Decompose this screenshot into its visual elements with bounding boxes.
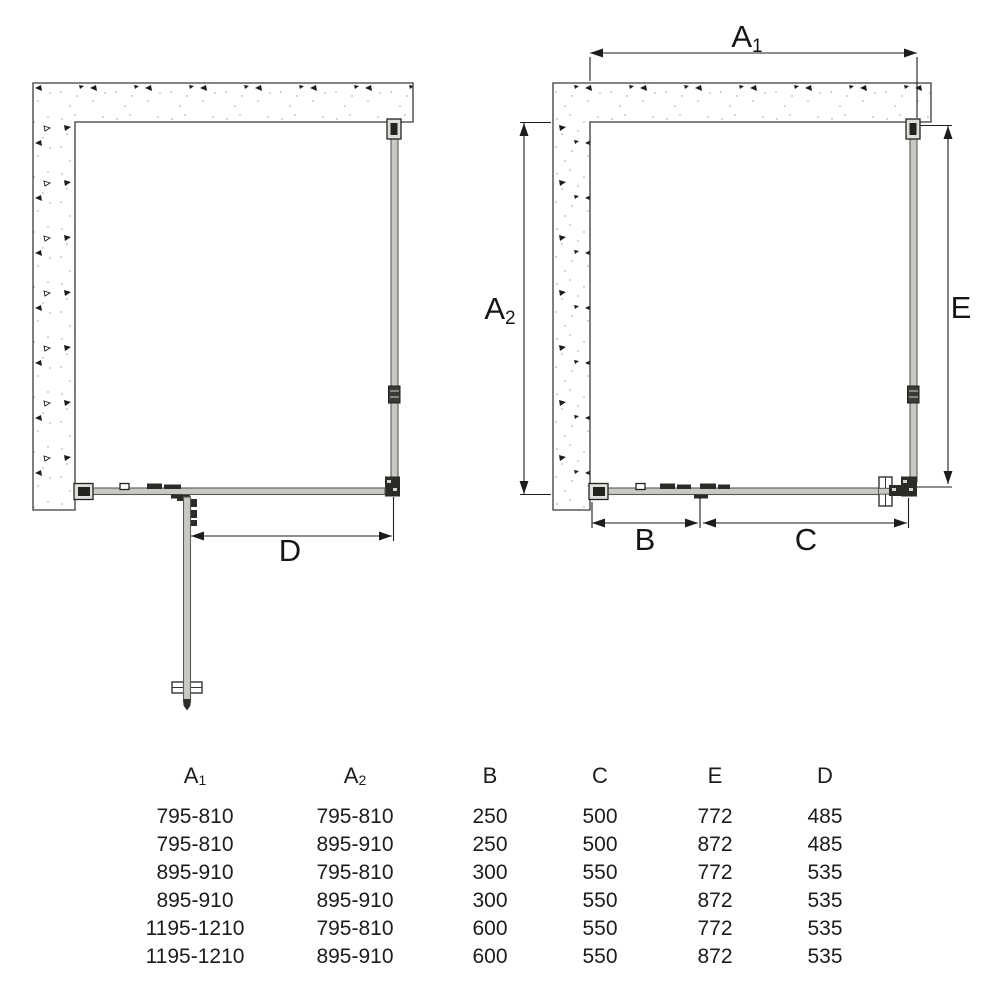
table-cell: 895-910 bbox=[115, 889, 275, 913]
table-cell: 772 bbox=[655, 917, 775, 941]
dim-label-c: C bbox=[795, 522, 817, 557]
table-cell: 795-810 bbox=[275, 805, 435, 829]
table-header-b: B bbox=[435, 763, 545, 789]
table-cell: 500 bbox=[545, 833, 655, 857]
table-cell: 872 bbox=[655, 889, 775, 913]
table-row: 895-910 895-910 300 550 872 535 bbox=[115, 887, 875, 915]
table-header-d: D bbox=[775, 763, 875, 789]
table-cell: 772 bbox=[655, 805, 775, 829]
corner-bracket bbox=[385, 477, 400, 497]
table-cell: 500 bbox=[545, 805, 655, 829]
table-cell: 300 bbox=[435, 861, 545, 885]
table-cell: 795-810 bbox=[115, 805, 275, 829]
shower-enclosure-technical-drawing: D bbox=[0, 0, 1000, 755]
dimension-d: D bbox=[191, 497, 394, 568]
dim-label-a1: A1 bbox=[731, 19, 762, 57]
table-cell: 795-810 bbox=[275, 861, 435, 885]
table-cell: 550 bbox=[545, 917, 655, 941]
table-cell: 550 bbox=[545, 889, 655, 913]
open-door-view: D bbox=[33, 83, 413, 711]
dimension-c: C bbox=[703, 498, 909, 557]
table-row: 795-810 795-810 250 500 772 485 bbox=[115, 803, 875, 831]
table-cell: 600 bbox=[435, 917, 545, 941]
table-cell: 300 bbox=[435, 889, 545, 913]
wall-profile-top bbox=[387, 119, 401, 139]
dimension-a2: A2 bbox=[484, 123, 551, 495]
side-glass-panel bbox=[910, 128, 917, 482]
dim-label-e: E bbox=[951, 290, 972, 325]
dim-label-d: D bbox=[279, 533, 301, 568]
bottom-glass-panel bbox=[92, 488, 385, 495]
dim-label-b: B bbox=[635, 522, 656, 557]
panel-connector bbox=[908, 386, 920, 403]
table-cell: 535 bbox=[775, 917, 875, 941]
table-row: 895-910 795-810 300 550 772 535 bbox=[115, 859, 875, 887]
wall-l-shape bbox=[33, 83, 413, 510]
table-cell: 250 bbox=[435, 833, 545, 857]
dimension-b: B bbox=[592, 497, 700, 557]
door-glass-open bbox=[184, 497, 191, 702]
table-cell: 535 bbox=[775, 861, 875, 885]
wall-profile-bottom bbox=[74, 484, 93, 500]
panel-connector bbox=[389, 386, 401, 403]
dimension-table: A1 A2 B C E D 795-810 795-810 250 500 77… bbox=[115, 762, 875, 971]
side-glass-panel bbox=[391, 128, 398, 482]
table-cell: 485 bbox=[775, 833, 875, 857]
table-cell: 872 bbox=[655, 833, 775, 857]
closed-view: A1 A2 E B bbox=[484, 19, 971, 557]
dim-label-a2: A2 bbox=[484, 291, 515, 329]
table-cell: 550 bbox=[545, 945, 655, 969]
corner-bracket bbox=[889, 477, 917, 497]
panel-bracket bbox=[636, 484, 645, 490]
table-cell: 895-910 bbox=[275, 945, 435, 969]
panel-bracket bbox=[120, 484, 129, 490]
table-cell: 1195-1210 bbox=[115, 945, 275, 969]
table-cell: 872 bbox=[655, 945, 775, 969]
table-cell: 550 bbox=[545, 861, 655, 885]
table-header-row: A1 A2 B C E D bbox=[115, 762, 875, 790]
front-glass-panel bbox=[607, 488, 901, 495]
table-header-e: E bbox=[655, 763, 775, 789]
table-row: 1195-1210 895-910 600 550 872 535 bbox=[115, 943, 875, 971]
table-cell: 895-910 bbox=[275, 833, 435, 857]
table-cell: 795-810 bbox=[115, 833, 275, 857]
table-row: 1195-1210 795-810 600 550 772 535 bbox=[115, 915, 875, 943]
door-bottom-cap bbox=[184, 699, 191, 711]
table-cell: 250 bbox=[435, 805, 545, 829]
table-cell: 485 bbox=[775, 805, 875, 829]
table-header-a1: A1 bbox=[115, 763, 275, 789]
table-cell: 600 bbox=[435, 945, 545, 969]
table-cell: 895-910 bbox=[115, 861, 275, 885]
wall-profile-top bbox=[906, 119, 920, 139]
table-cell: 535 bbox=[775, 945, 875, 969]
table-header-c: C bbox=[545, 763, 655, 789]
table-cell: 535 bbox=[775, 889, 875, 913]
table-cell: 895-910 bbox=[275, 889, 435, 913]
table-cell: 1195-1210 bbox=[115, 917, 275, 941]
table-header-a2: A2 bbox=[275, 763, 435, 789]
table-row: 795-810 895-910 250 500 872 485 bbox=[115, 831, 875, 859]
wall-l-shape bbox=[553, 83, 931, 510]
table-cell: 772 bbox=[655, 861, 775, 885]
table-cell: 795-810 bbox=[275, 917, 435, 941]
wall-profile-bottom bbox=[589, 484, 608, 500]
dimension-e: E bbox=[917, 126, 971, 488]
